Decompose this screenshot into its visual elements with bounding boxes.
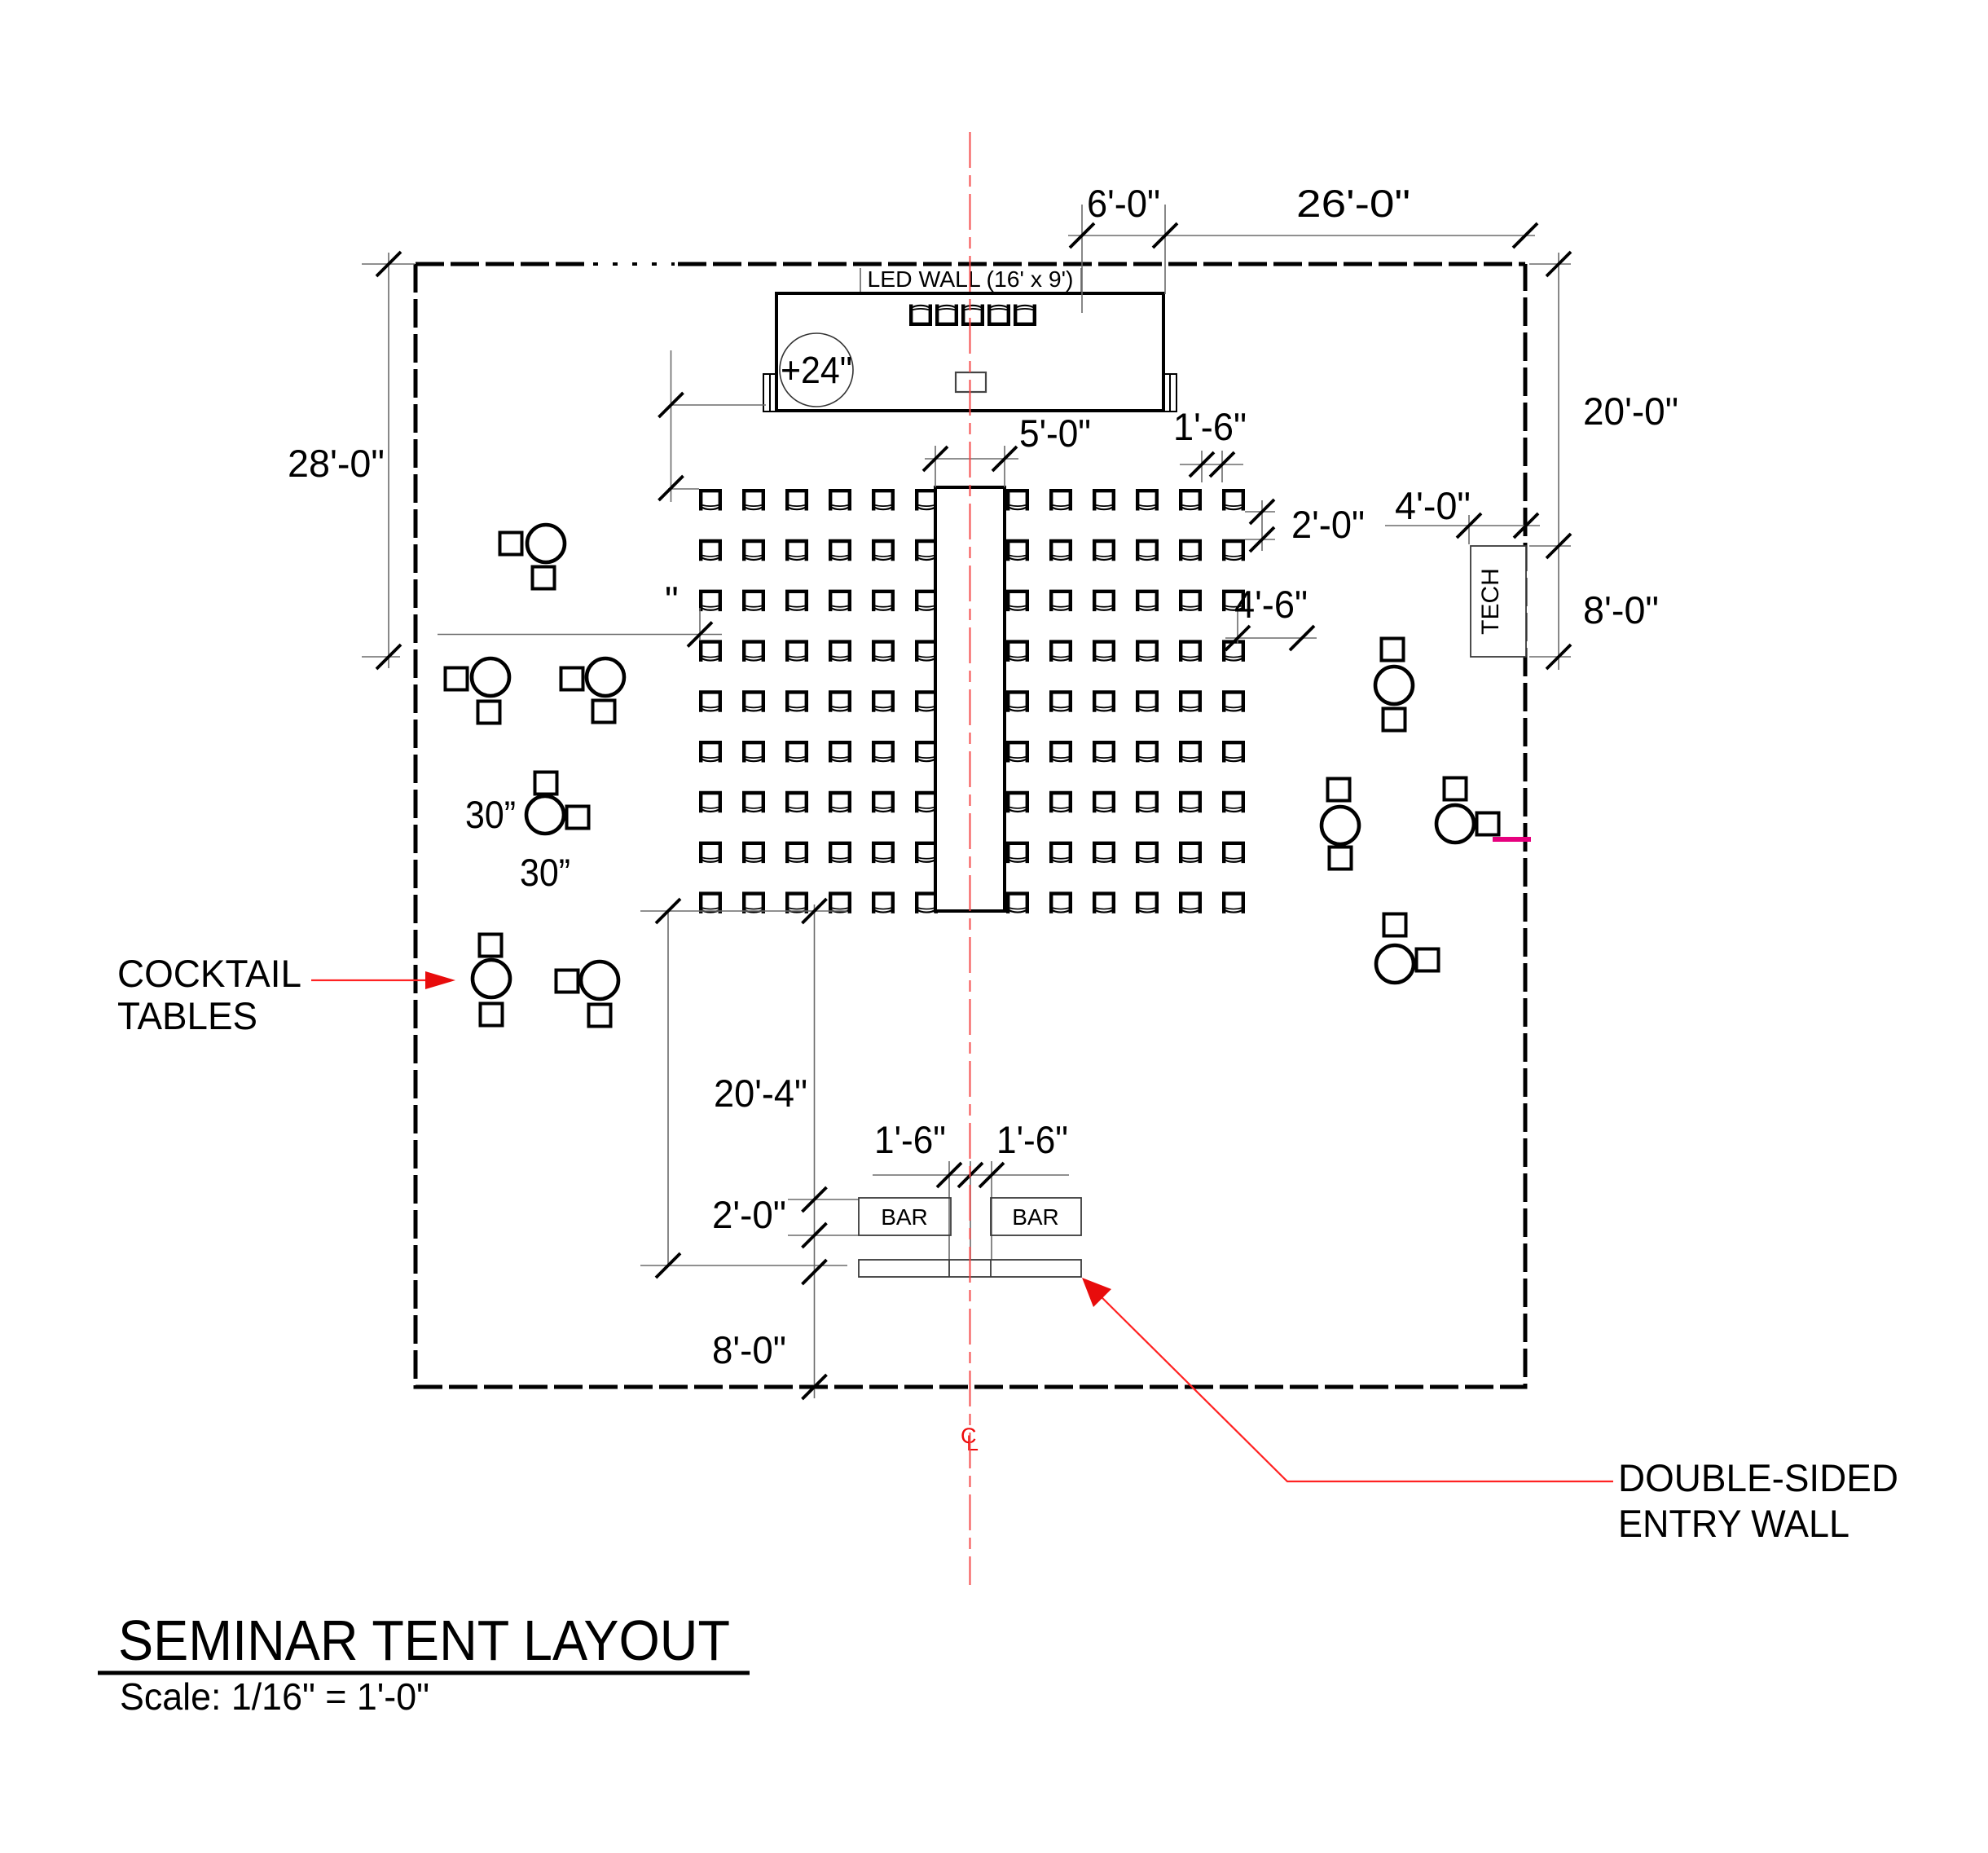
svg-text:26'-0": 26'-0"	[1296, 182, 1410, 225]
svg-text:COCKTAIL: COCKTAIL	[117, 952, 301, 995]
svg-text:TECH: TECH	[1477, 568, 1504, 635]
svg-text:2'-0": 2'-0"	[712, 1193, 786, 1236]
svg-text:BAR: BAR	[1012, 1204, 1059, 1230]
svg-text:8'-0": 8'-0"	[712, 1328, 786, 1371]
svg-text:+24": +24"	[781, 349, 852, 391]
svg-text:": "	[665, 579, 679, 622]
svg-text:TABLES: TABLES	[117, 994, 257, 1037]
svg-text:1'-6": 1'-6"	[874, 1118, 946, 1161]
svg-text:ENTRY WALL: ENTRY WALL	[1618, 1502, 1849, 1545]
svg-text:4'-6": 4'-6"	[1234, 583, 1308, 626]
svg-text:SEMINAR TENT LAYOUT: SEMINAR TENT LAYOUT	[118, 1609, 730, 1672]
svg-text:20'-0": 20'-0"	[1583, 390, 1678, 433]
svg-text:DOUBLE-SIDED: DOUBLE-SIDED	[1618, 1456, 1898, 1499]
svg-text:28'-0": 28'-0"	[288, 442, 385, 485]
svg-text:20'-4": 20'-4"	[714, 1072, 807, 1115]
svg-text:30”: 30”	[465, 793, 516, 836]
svg-text:6'-0": 6'-0"	[1087, 182, 1160, 225]
svg-text:BAR: BAR	[881, 1204, 928, 1230]
svg-text:1'-6": 1'-6"	[1173, 405, 1247, 448]
svg-text:8'-0": 8'-0"	[1583, 588, 1659, 632]
svg-text:L: L	[966, 1431, 979, 1455]
svg-text:5'-0": 5'-0"	[1019, 412, 1091, 455]
svg-text:30”: 30”	[520, 851, 570, 894]
svg-text:Scale: 1/16" = 1'-0": Scale: 1/16" = 1'-0"	[120, 1675, 429, 1718]
svg-text:1'-6": 1'-6"	[996, 1118, 1068, 1161]
svg-text:2'-0": 2'-0"	[1291, 503, 1365, 546]
svg-text:4'-0": 4'-0"	[1395, 484, 1471, 527]
